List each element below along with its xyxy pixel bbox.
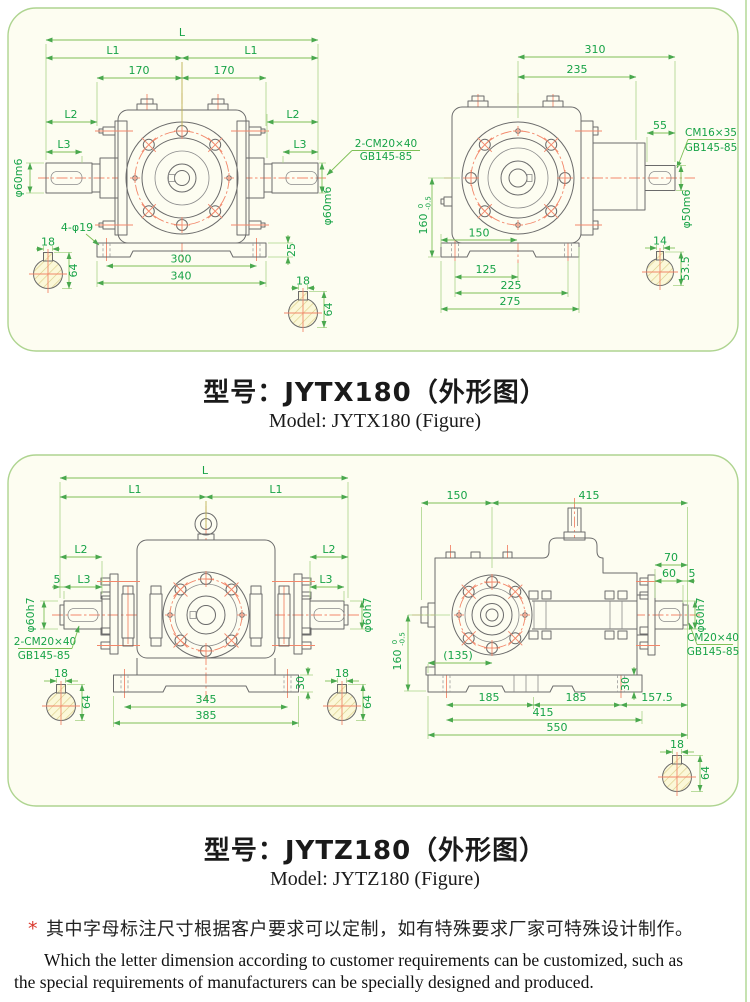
key-spec-note-line2: GB145-85: [18, 650, 71, 662]
dim-415-top: 415: [579, 489, 600, 502]
dim-135: (135): [443, 649, 473, 662]
gear-body: [441, 96, 602, 257]
dim-185-left: 185: [479, 691, 500, 704]
dim-170-right: 170: [214, 64, 235, 77]
dim-shaft-dia: φ60h7: [694, 597, 707, 632]
key-spec-note-line2: GB145-85: [360, 151, 413, 163]
key-spec-note-line2: GB145-85: [687, 646, 740, 658]
dim-415: 415: [533, 706, 554, 719]
dim-70: 70: [664, 551, 678, 564]
note-en-line2: the special requirements of manufacturer…: [14, 972, 736, 994]
dim-5: 5: [54, 573, 61, 586]
page-edge-line: [745, 0, 747, 1002]
dim-157-5: 157.5: [641, 691, 673, 704]
dim-385: 385: [196, 709, 217, 722]
svg-text:160: 160: [391, 650, 404, 671]
key-spec-note-line2: GB145-85: [685, 142, 738, 154]
dim-sec-height: 64: [699, 766, 712, 780]
dim-sec-key: 18: [41, 236, 55, 249]
dim-L3-left: L3: [57, 138, 70, 151]
dim-sec-key: 18: [54, 667, 68, 680]
dim-5: 5: [689, 567, 696, 580]
jytz180-drawing-panel: L L1 L1 L2 5 L3 L2 L3 φ60h7 φ60h7 2: [0, 445, 750, 817]
dim-sec-height: 64: [361, 695, 374, 709]
asterisk-mark: *: [28, 918, 38, 940]
panel2-title-cn: 型号：JYTZ180（外形图）: [0, 830, 750, 867]
dim-L3-left: L3: [77, 573, 90, 586]
svg-text:-0.5: -0.5: [425, 196, 433, 210]
dim-550: 550: [547, 721, 568, 734]
note-cn-text: 其中字母标注尺寸根据客户要求可以定制，如有特殊要求厂家可特殊设计制作。: [46, 919, 694, 940]
dim-shaft-dia-right: φ60h7: [361, 597, 374, 632]
dim-345: 345: [196, 693, 217, 706]
dim-L1-left: L1: [128, 483, 141, 496]
panel2-caption: 型号：JYTZ180（外形图） Model: JYTZ180 (Figure): [0, 830, 750, 891]
dim-sec-height: 53.5: [679, 256, 692, 281]
dim-sec-height: 64: [80, 695, 93, 709]
dim-L2-right: L2: [322, 543, 335, 556]
key-spec-note-line1: 2-CM20×40: [14, 636, 76, 648]
panel1-title-cn: 型号：JYTX180（外形图）: [0, 372, 750, 409]
panel2-title-en: Model: JYTZ180 (Figure): [0, 868, 750, 891]
dim-340: 340: [171, 270, 192, 283]
dim-300: 300: [171, 253, 192, 266]
dim-L: L: [202, 464, 209, 477]
dim-sec-height: 64: [322, 303, 335, 317]
dim-275: 275: [500, 295, 521, 308]
dim-170-left: 170: [129, 64, 150, 77]
dim-235: 235: [567, 63, 588, 76]
dim-shaft-dia-right: φ60m6: [321, 187, 334, 226]
panel1-title-en: Model: JYTX180 (Figure): [0, 410, 750, 433]
svg-text:160: 160: [417, 214, 430, 235]
note-cn: *其中字母标注尺寸根据客户要求可以定制，如有特殊要求厂家可特殊设计制作。: [14, 915, 736, 941]
dim-L1-right: L1: [244, 44, 257, 57]
dim-L2-left: L2: [74, 543, 87, 556]
dim-150: 150: [447, 489, 468, 502]
dim-L3-right: L3: [293, 138, 306, 151]
dim-310: 310: [585, 43, 606, 56]
note-en-line1: Which the letter dimension according to …: [14, 950, 736, 972]
note-en: Which the letter dimension according to …: [14, 950, 736, 994]
dim-L3-right: L3: [319, 573, 332, 586]
dim-sec-key: 14: [653, 235, 667, 248]
dim-shaft-dia-left: φ60h7: [24, 597, 37, 632]
dim-125: 125: [476, 263, 497, 276]
dim-L1-left: L1: [106, 44, 119, 57]
dim-60: 60: [662, 567, 676, 580]
dim-sec-key: 18: [335, 667, 349, 680]
dim-150: 150: [469, 227, 490, 240]
foot-holes-note: 4-φ19: [61, 221, 93, 234]
dim-sec-height: 64: [67, 264, 80, 278]
dim-L2-left: L2: [64, 108, 77, 121]
dim-L2-right: L2: [286, 108, 299, 121]
svg-text:-0.5: -0.5: [399, 632, 407, 646]
dim-L1-right: L1: [269, 483, 282, 496]
dim-shaft-dia: φ50m6: [680, 190, 693, 229]
dim-30: 30: [294, 676, 307, 690]
dim-sec-key: 18: [670, 738, 684, 751]
dim-25: 25: [285, 243, 298, 257]
dim-shaft-dia-left: φ60m6: [12, 159, 25, 198]
key-spec-note-line1: CM16×35: [685, 127, 737, 139]
key-spec-note-line1: 2-CM20×40: [355, 138, 417, 150]
jytx180-drawing-panel: L L1 L1 170 170 L2 L3 L2 L3 φ60m6 φ60m6 …: [0, 0, 750, 362]
catalog-page: { "panel1": { "title_cn": "型号：JYTX180（外形…: [0, 0, 750, 1002]
dim-225: 225: [501, 279, 522, 292]
dim-185-right: 185: [566, 691, 587, 704]
dim-30: 30: [619, 677, 632, 691]
customization-note: *其中字母标注尺寸根据客户要求可以定制，如有特殊要求厂家可特殊设计制作。 Whi…: [0, 915, 750, 994]
dim-sec-key: 18: [296, 275, 310, 288]
panel1-caption: 型号：JYTX180（外形图） Model: JYTX180 (Figure): [0, 372, 750, 433]
dim-L: L: [179, 26, 186, 39]
dim-55: 55: [653, 119, 667, 132]
